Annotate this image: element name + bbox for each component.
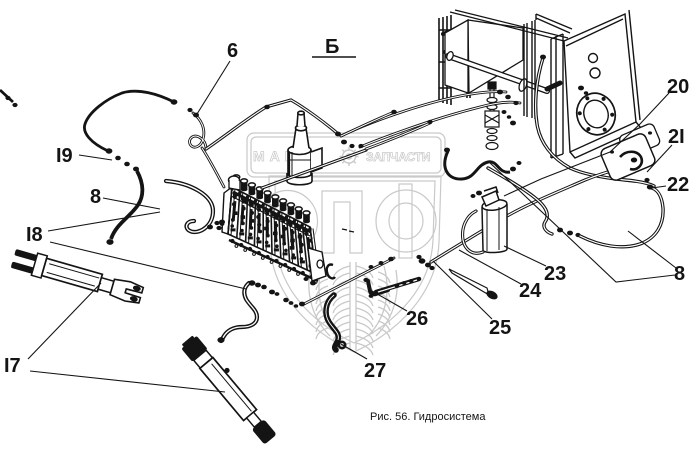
svg-text:20: 20 (667, 76, 689, 98)
svg-text:26: 26 (406, 308, 428, 330)
svg-text:23: 23 (544, 263, 566, 285)
svg-text:ЗАПЧАСТИ: ЗАПЧАСТИ (366, 150, 430, 164)
svg-text:6: 6 (227, 40, 238, 62)
svg-text:Б: Б (325, 36, 339, 58)
svg-text:27: 27 (364, 360, 386, 382)
svg-text:8: 8 (674, 263, 685, 285)
svg-text:22: 22 (667, 174, 689, 196)
svg-text:25: 25 (489, 317, 511, 339)
svg-text:I7: I7 (4, 355, 21, 377)
svg-text:I8: I8 (26, 224, 43, 246)
svg-text:8: 8 (90, 186, 101, 208)
svg-text:2I: 2I (668, 126, 685, 148)
svg-text:Рис. 56. Гидросистема: Рис. 56. Гидросистема (370, 411, 486, 423)
svg-text:I9: I9 (56, 145, 73, 167)
svg-text:24: 24 (519, 280, 542, 302)
